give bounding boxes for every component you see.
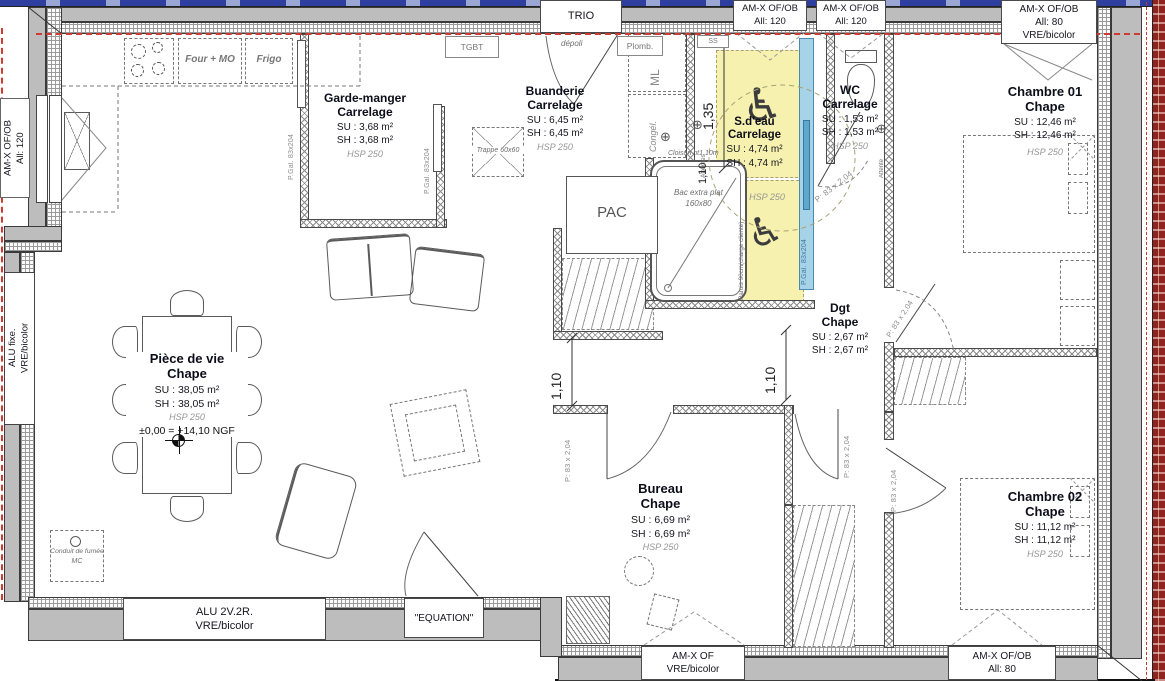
window-label-line: AM-X OF/OB bbox=[823, 3, 879, 15]
drain-icon: ⊕ bbox=[660, 130, 671, 143]
pocket-door-leaf-2 bbox=[433, 104, 442, 172]
window-left-2-label: ALU fixe. VRE/bicolor bbox=[6, 278, 33, 418]
ss-box: SS bbox=[697, 35, 729, 48]
dim-110-right: 1,10 bbox=[762, 338, 778, 394]
wall-gardemanger-bottom bbox=[300, 219, 447, 228]
window-bottom-amxob-label: AM-X OF/OB All: 80 bbox=[948, 646, 1056, 680]
room-label-piece-de-vie: Pièce de vie Chape SU : 38,05 m² SH : 38… bbox=[126, 352, 248, 437]
desk-chair bbox=[624, 556, 654, 586]
room-finish: Chape bbox=[126, 367, 248, 382]
window-label-line: ALU fixe. bbox=[7, 329, 19, 368]
room-label-sdeau: S.d'eau Carrelage SU : 4,74 m² SH : 4,74… bbox=[697, 116, 812, 169]
tgbt-label: TGBT bbox=[461, 42, 484, 52]
room-finish: Carrelage bbox=[300, 106, 430, 120]
tgbt-box: TGBT bbox=[445, 36, 499, 58]
ml-label: ML bbox=[648, 46, 662, 86]
wall-connector-gray bbox=[540, 597, 562, 657]
door-label-chambre02: P: 83 x 2,04 bbox=[889, 448, 898, 512]
window-label-line: AM-X OF/OB bbox=[1020, 3, 1079, 16]
room-sh: SH : 38,05 m² bbox=[126, 398, 248, 410]
room-sh: SH : 2,67 m² bbox=[800, 345, 880, 357]
nightstand bbox=[1060, 306, 1095, 346]
window-label-line: AM-X OF/OB bbox=[3, 120, 15, 176]
room-label-bureau: Bureau Chape SU : 6,69 m² SH : 6,69 m² H… bbox=[593, 482, 728, 552]
wall-sdeau-left bbox=[686, 34, 695, 162]
coffee-table-inner bbox=[405, 404, 465, 461]
window-label-line: All: 80 bbox=[1035, 16, 1063, 29]
sofa bbox=[409, 246, 486, 312]
room-name: Garde-manger bbox=[300, 92, 430, 106]
room-su: SU : 6,69 m² bbox=[593, 514, 728, 526]
room-finish: Carrelage bbox=[495, 99, 615, 113]
wall-tech-left bbox=[553, 228, 562, 340]
window-left-1-label: AM-X OF/OB All: 120 bbox=[0, 98, 30, 198]
room-finish: Carrelage bbox=[802, 98, 898, 112]
shower-label-1: Bac extra plat bbox=[656, 188, 741, 197]
window-top-2-label: AM-X OF/OB All: 120 bbox=[816, 0, 886, 31]
level-marker-cross-v bbox=[179, 426, 180, 454]
room-hsp: HSP 250 bbox=[495, 142, 615, 152]
room-finish: Chape bbox=[950, 505, 1140, 520]
wall-top-red-dash bbox=[36, 33, 1140, 35]
room-su: SU : 4,74 m² bbox=[697, 144, 812, 156]
window-label-line: VRE/bicolor bbox=[667, 663, 720, 676]
room-sh: SH : 6,69 m² bbox=[593, 528, 728, 540]
door-trio-label: TRIO bbox=[540, 0, 622, 33]
room-hsp: HSP 250 bbox=[126, 412, 248, 422]
flue-label: Conduit de fumée bbox=[44, 548, 110, 555]
room-name: Dgt bbox=[800, 302, 880, 316]
door-label-pgal-blue: P.Gal. 83x204 bbox=[801, 200, 812, 285]
door-label-pgal-1: P.Gal. 83x204 bbox=[288, 118, 298, 180]
parois-note: Parois 90cm(charge cliente) bbox=[738, 200, 745, 300]
room-su: SU : 3,68 m² bbox=[300, 122, 430, 134]
window-bottom-amx-label: AM-X OF VRE/bicolor bbox=[641, 646, 745, 680]
bed-pillow bbox=[1068, 182, 1088, 214]
room-sh: SH : 12,46 m² bbox=[950, 130, 1140, 142]
door-label-wc: P: 83 x 2,04 bbox=[813, 151, 877, 204]
room-hsp: HSP 250 bbox=[593, 542, 728, 552]
cooktop-burner bbox=[152, 42, 163, 53]
room-name: Chambre 02 bbox=[950, 490, 1140, 505]
room-finish: Chape bbox=[800, 316, 880, 330]
dining-chair bbox=[236, 442, 262, 474]
room-hsp: HSP 250 bbox=[950, 147, 1140, 157]
room-name: Bureau bbox=[593, 482, 728, 497]
desk-hatched bbox=[566, 596, 610, 644]
wall-left-step-hatch bbox=[4, 241, 62, 252]
window-label-line: VRE/bicolor bbox=[195, 619, 253, 633]
window-top-right-label: AM-X OF/OB All: 80 VRE/bicolor bbox=[1001, 0, 1097, 44]
room-finish: Chape bbox=[950, 100, 1140, 115]
wall-chambre02-left-stub bbox=[884, 412, 894, 440]
room-hsp: HSP 250 bbox=[300, 149, 430, 159]
room-label-wc: WC Carrelage SU : 1,53 m² SH : 1,53 m² H… bbox=[802, 84, 898, 151]
tech-floor-hatch bbox=[562, 258, 654, 330]
room-finish: Carrelage bbox=[697, 129, 812, 142]
cooktop-burner bbox=[131, 44, 146, 59]
toilet-tank bbox=[845, 50, 877, 63]
window-left-1-pane bbox=[47, 95, 50, 203]
room-hsp: HSP 250 bbox=[802, 141, 898, 151]
room-name: Chambre 01 bbox=[950, 85, 1140, 100]
window-top-1-label: AM-X OF/OB All: 120 bbox=[733, 0, 807, 31]
nightstand bbox=[1060, 260, 1095, 300]
depoli-note: dépoli bbox=[561, 39, 582, 48]
room-su: SU : 12,46 m² bbox=[950, 117, 1140, 129]
sheet-right-brick-band bbox=[1152, 0, 1165, 681]
room-sh: SH : 1,53 m² bbox=[802, 127, 898, 139]
shower-tray-inner bbox=[656, 166, 741, 296]
wall-chambre02-left-lower bbox=[884, 512, 894, 648]
window-label-line: All: 80 bbox=[988, 663, 1016, 676]
room-name: S.d'eau bbox=[697, 116, 812, 129]
cooktop-burner bbox=[131, 64, 144, 77]
window-label-line: AM-X OF bbox=[672, 650, 714, 663]
room-su: SU : 1,53 m² bbox=[802, 114, 898, 126]
floor-plan: ♿ ♿ P.Gal. 83x204 P.Gal. 83x204 P.Gal. 8… bbox=[0, 0, 1165, 681]
wall-chambre01-bottom bbox=[894, 348, 1097, 357]
equation-text: "EQUATION" bbox=[415, 612, 474, 625]
room-label-garde-manger: Garde-manger Carrelage SU : 3,68 m² SH :… bbox=[300, 92, 430, 159]
pac-label: PAC bbox=[566, 204, 658, 221]
sheet-right-red-dash bbox=[1146, 2, 1147, 680]
fridge-label: Frigo bbox=[245, 54, 293, 65]
room-finish: Chape bbox=[593, 497, 728, 512]
room-name: Buanderie bbox=[495, 85, 615, 99]
dim-110-left: 1,10 bbox=[548, 344, 564, 400]
closet-hatch-bureau bbox=[793, 505, 855, 647]
kitchen-sink bbox=[64, 112, 90, 170]
ss-label: SS bbox=[708, 38, 717, 45]
room-name: WC bbox=[802, 84, 898, 98]
level-annotation: ±0,00 = +14,10 NGF bbox=[126, 425, 248, 437]
wall-left-step-gray bbox=[4, 226, 62, 241]
room-su: SU : 2,67 m² bbox=[800, 332, 880, 344]
room-sh: SH : 11,12 m² bbox=[950, 535, 1140, 547]
wall-tech-bottom bbox=[553, 331, 663, 340]
sdeau-hsp: HSP 250 bbox=[736, 192, 798, 202]
room-sh: SH : 3,68 m² bbox=[300, 135, 430, 147]
window-label-line: All: 120 bbox=[835, 16, 867, 28]
window-label-line: All: 120 bbox=[754, 16, 786, 28]
room-su: SU : 38,05 m² bbox=[126, 384, 248, 396]
cooktop-burner bbox=[152, 62, 165, 75]
window-label-line: VRE/bicolor bbox=[1023, 29, 1076, 42]
room-hsp: HSP 250 bbox=[950, 549, 1140, 559]
door-equation-label: "EQUATION" bbox=[404, 598, 484, 638]
oven-label: Four + MO bbox=[178, 54, 242, 65]
wall-bureau-right bbox=[784, 405, 793, 505]
shower-label-2: 160x80 bbox=[656, 199, 741, 208]
desk-side-table bbox=[647, 593, 680, 630]
closet-hatch-chambre01 bbox=[894, 357, 966, 405]
wall-bureau-top-b bbox=[673, 405, 794, 414]
congel-label: Congél. bbox=[648, 104, 658, 152]
flue-mc-label: MC bbox=[50, 558, 104, 565]
dining-chair bbox=[170, 290, 204, 316]
window-label-line: All: 120 bbox=[15, 132, 27, 164]
dining-chair bbox=[112, 442, 138, 474]
dining-chair bbox=[170, 496, 204, 522]
room-sh: SH : 6,45 m² bbox=[495, 128, 615, 140]
room-su: SU : 11,12 m² bbox=[950, 522, 1140, 534]
cooktop bbox=[124, 38, 174, 84]
door-label-bureau: P: 83 x 2,04 bbox=[563, 418, 572, 482]
armchair bbox=[273, 461, 358, 561]
window-label-line: ALU 2V.2R. bbox=[196, 605, 253, 619]
flue-circle bbox=[70, 536, 81, 547]
window-label-line: AM-X OF/OB bbox=[742, 3, 798, 15]
wall-chambre01-left-lower bbox=[884, 342, 894, 412]
wall-closet-left bbox=[784, 505, 793, 648]
room-label-chambre01: Chambre 01 Chape SU : 12,46 m² SH : 12,4… bbox=[950, 85, 1140, 157]
door-label-dgt: P: 83 x 2,04 bbox=[842, 414, 851, 478]
trio-text: TRIO bbox=[568, 9, 594, 23]
wall-chambre01-left-upper bbox=[884, 34, 894, 288]
room-su: SU : 6,45 m² bbox=[495, 115, 615, 127]
window-alu-label: ALU 2V.2R. VRE/bicolor bbox=[123, 598, 326, 640]
window-label-line: VRE/bicolor bbox=[20, 323, 32, 373]
wall-bureau-top-a bbox=[553, 405, 608, 414]
room-label-dgt: Dgt Chape SU : 2,67 m² SH : 2,67 m² bbox=[800, 302, 880, 357]
room-name: Pièce de vie bbox=[126, 352, 248, 367]
window-label-line: AM-X OF/OB bbox=[973, 650, 1032, 663]
room-sh: SH : 4,74 m² bbox=[697, 158, 812, 170]
room-label-chambre02: Chambre 02 Chape SU : 11,12 m² SH : 11,1… bbox=[950, 490, 1140, 559]
room-label-buanderie: Buanderie Carrelage SU : 6,45 m² SH : 6,… bbox=[495, 85, 615, 152]
